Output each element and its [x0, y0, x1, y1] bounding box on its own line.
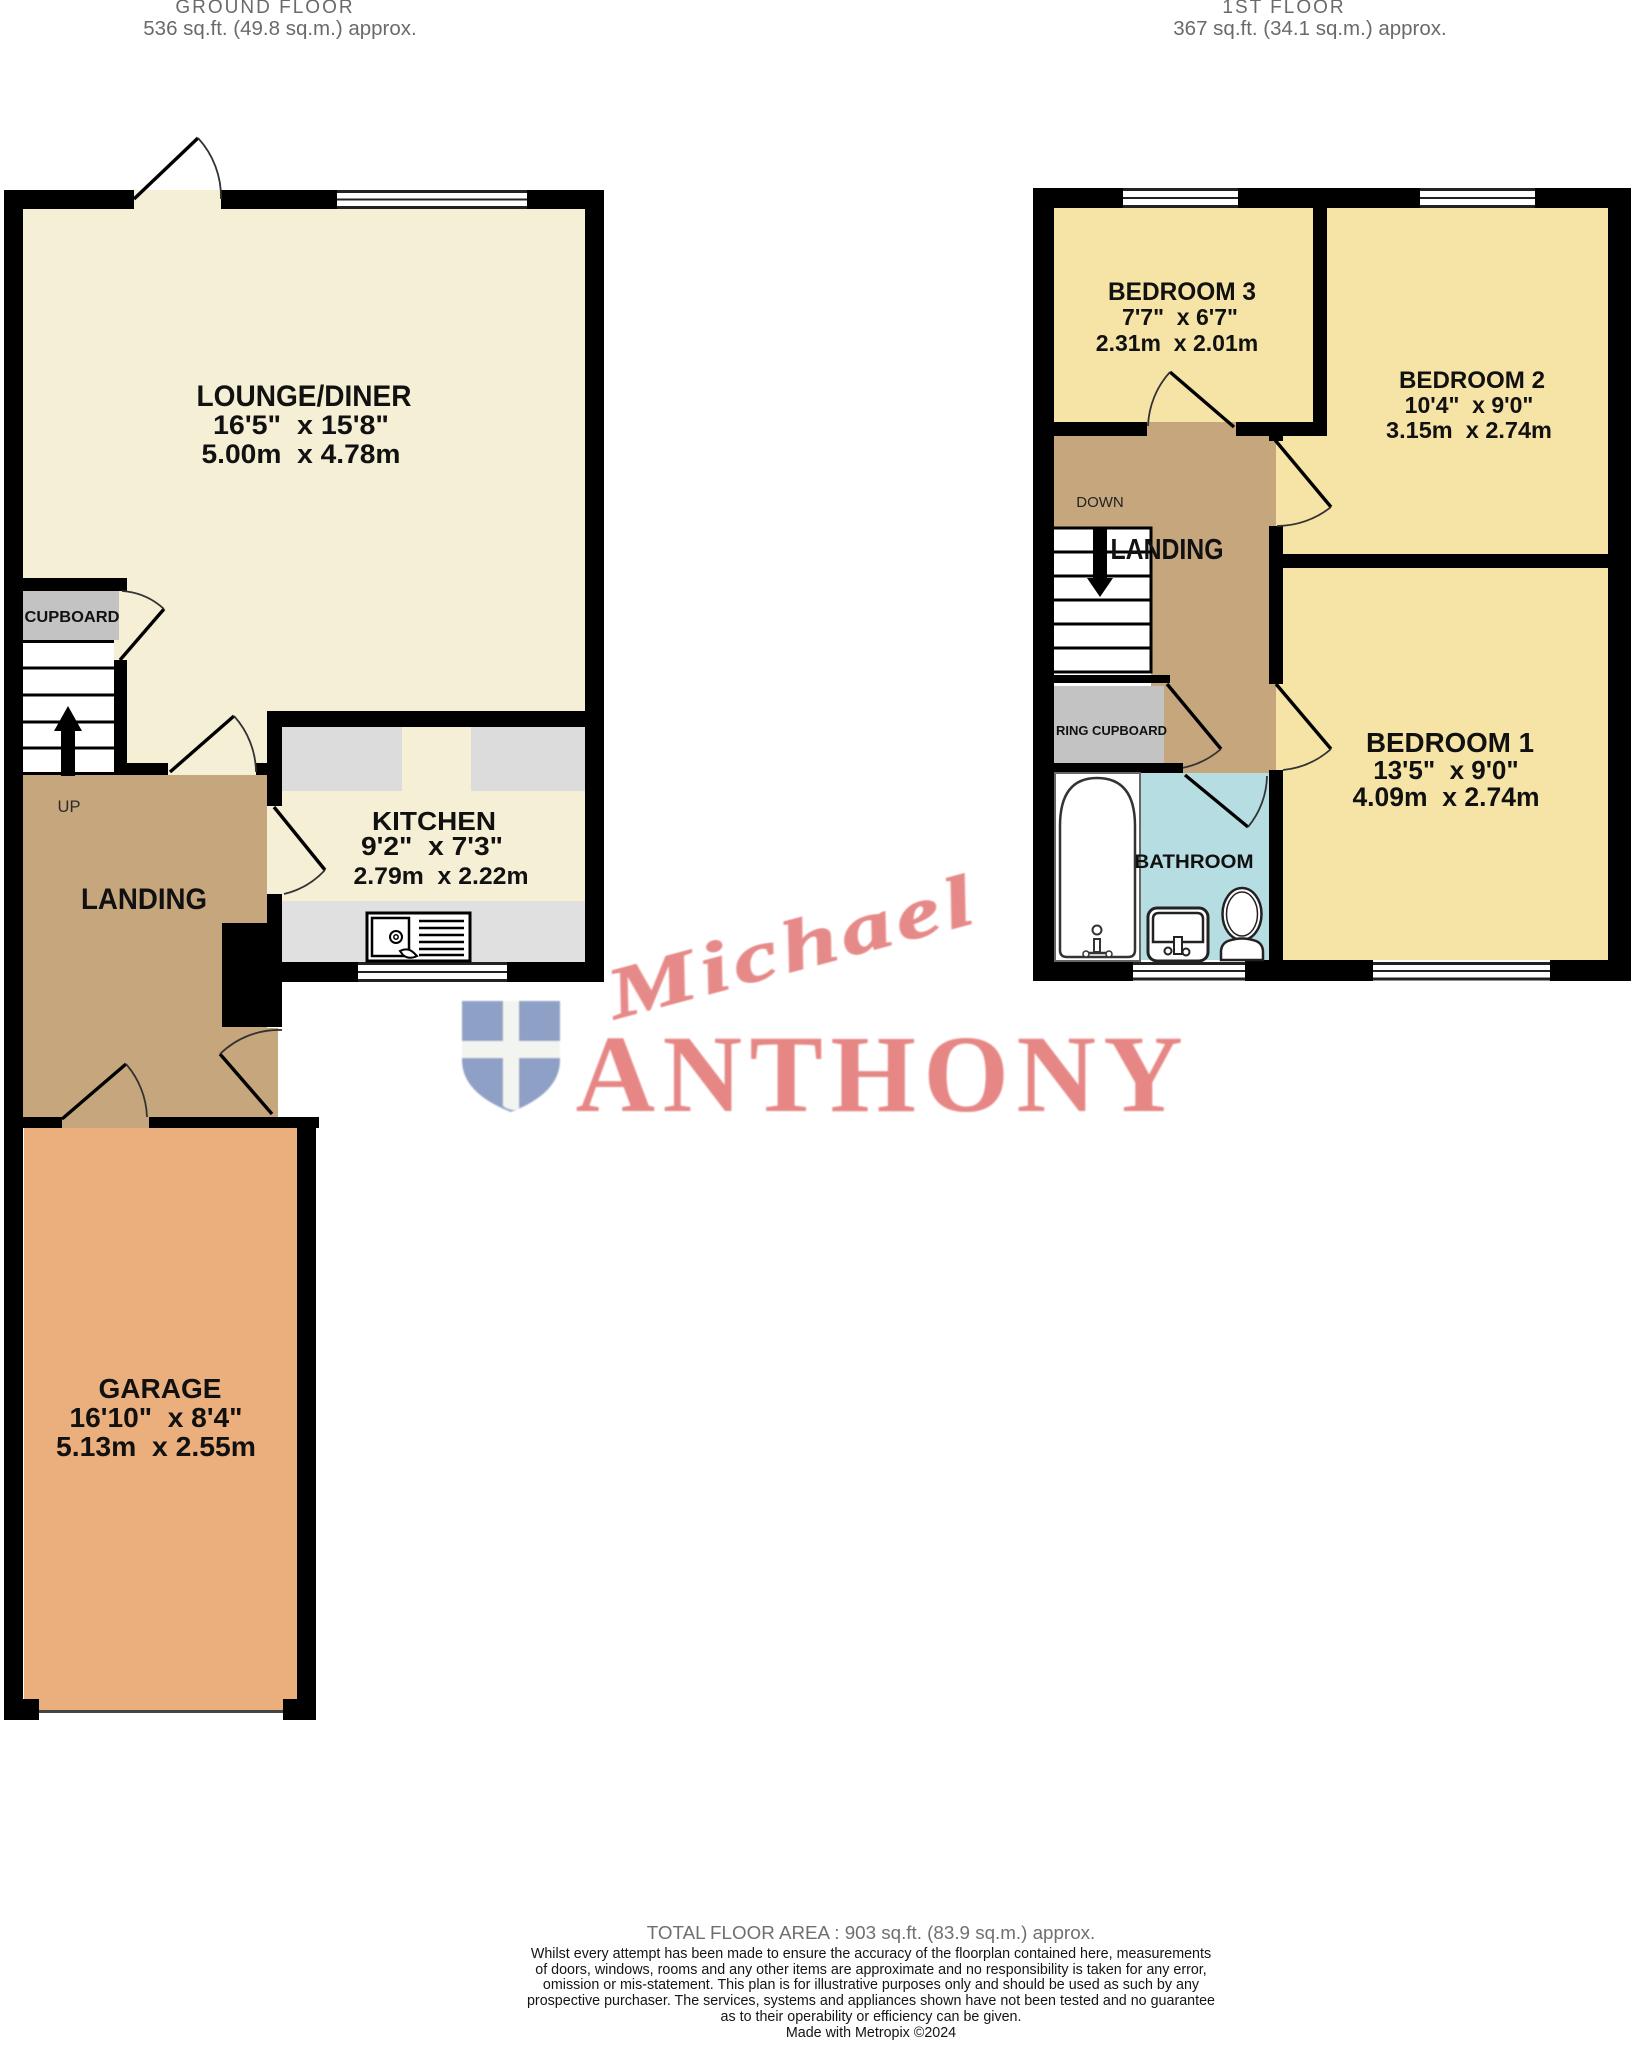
- svg-text:RING CUPBOARD: RING CUPBOARD: [1056, 723, 1167, 738]
- svg-text:LANDING: LANDING: [81, 883, 207, 916]
- svg-text:BEDROOM 1: BEDROOM 1: [1366, 727, 1534, 758]
- svg-text:2.31m x 2.01m: 2.31m x 2.01m: [1096, 330, 1258, 356]
- svg-text:BEDROOM 3: BEDROOM 3: [1108, 278, 1256, 306]
- svg-text:ANTHONY: ANTHONY: [576, 1013, 1191, 1135]
- svg-text:13'5" x 9'0": 13'5" x 9'0": [1373, 755, 1518, 785]
- svg-text:4.09m x 2.74m: 4.09m x 2.74m: [1352, 782, 1539, 812]
- svg-text:2.79m x 2.22m: 2.79m x 2.22m: [354, 863, 529, 890]
- svg-text:GARAGE: GARAGE: [99, 1373, 222, 1404]
- svg-text:UP: UP: [58, 798, 81, 816]
- svg-text:LOUNGE/DINER: LOUNGE/DINER: [197, 380, 412, 413]
- svg-text:LANDING: LANDING: [1111, 534, 1224, 566]
- svg-text:9'2" x 7'3": 9'2" x 7'3": [361, 833, 503, 861]
- svg-text:16'10" x 8'4": 16'10" x 8'4": [70, 1402, 243, 1433]
- svg-text:DOWN: DOWN: [1076, 494, 1124, 511]
- svg-text:5.00m x 4.78m: 5.00m x 4.78m: [202, 439, 401, 469]
- svg-text:KITCHEN: KITCHEN: [372, 806, 496, 836]
- svg-text:BEDROOM 2: BEDROOM 2: [1399, 367, 1545, 394]
- svg-text:3.15m x 2.74m: 3.15m x 2.74m: [1386, 417, 1552, 443]
- svg-text:5.13m x 2.55m: 5.13m x 2.55m: [56, 1431, 256, 1462]
- svg-text:16'5" x 15'8": 16'5" x 15'8": [213, 410, 389, 440]
- svg-text:10'4" x 9'0": 10'4" x 9'0": [1405, 392, 1534, 418]
- svg-text:BATHROOM: BATHROOM: [1135, 852, 1254, 873]
- svg-text:CUPBOARD: CUPBOARD: [25, 609, 120, 626]
- svg-text:Michael: Michael: [596, 858, 987, 1035]
- svg-text:7'7" x 6'7": 7'7" x 6'7": [1122, 304, 1238, 330]
